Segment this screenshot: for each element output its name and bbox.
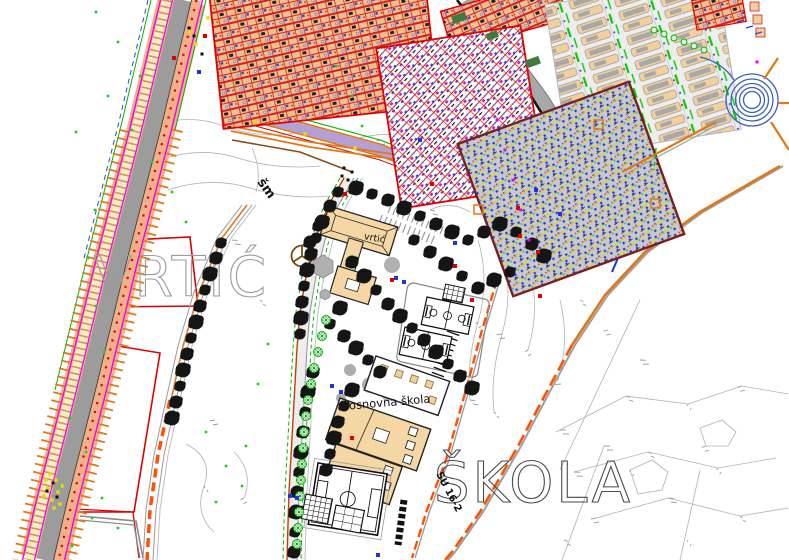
green-dot: [139, 75, 142, 78]
tree-canopy: [303, 242, 309, 248]
tree-canopy: [373, 372, 379, 378]
tree-canopy: [175, 370, 182, 377]
green-dot: [245, 445, 248, 448]
tree-canopy: [180, 354, 186, 360]
tick-mark: [494, 412, 496, 414]
tree-canopy: [177, 396, 183, 402]
magenta-dot: [756, 61, 759, 64]
tree-canopy: [362, 360, 367, 365]
tree-canopy: [181, 381, 186, 386]
tree-icon: [444, 225, 460, 240]
tick-mark: [473, 404, 478, 405]
green-dot: [361, 125, 364, 128]
conifer-icon: [318, 332, 327, 341]
yellow-dot: [44, 478, 47, 481]
tree-canopy: [184, 364, 191, 371]
tree-canopy: [353, 384, 360, 391]
tree-canopy: [301, 329, 306, 334]
tick-mark: [232, 240, 238, 241]
tick-mark: [479, 326, 481, 328]
green-dot: [241, 485, 244, 488]
tick-mark: [240, 498, 244, 500]
tree-canopy: [442, 364, 447, 369]
tick-mark: [207, 490, 208, 492]
tick-mark: [528, 354, 531, 356]
tree-canopy: [444, 232, 451, 239]
black-dot: [343, 167, 346, 170]
tick-mark: [717, 468, 718, 470]
conifer-center: [317, 351, 319, 353]
tree-canopy: [425, 334, 431, 340]
zone-label-school: ŠKOLA: [434, 451, 633, 516]
tree-icon: [429, 218, 443, 231]
tree-icon: [175, 363, 191, 378]
tree-canopy: [303, 296, 309, 302]
conifer-icon: [298, 460, 307, 469]
conifer-icon: [297, 476, 306, 485]
tick-mark: [243, 502, 247, 504]
red-dot: [470, 298, 474, 302]
contour-line: [556, 386, 788, 432]
red-dot: [430, 182, 434, 186]
green-dot: [95, 305, 98, 308]
conifer-icon: [295, 508, 304, 517]
tree-canopy: [396, 208, 403, 215]
tree-icon: [337, 330, 351, 343]
conifer-icon: [307, 380, 316, 389]
tree-canopy: [209, 258, 215, 264]
tree-canopy: [289, 532, 294, 537]
tree-canopy: [381, 366, 387, 372]
tree-canopy: [370, 290, 375, 295]
blue-dot: [418, 138, 422, 142]
tree-canopy: [326, 438, 333, 445]
blue-dot: [197, 70, 201, 74]
tree-canopy: [294, 334, 299, 339]
tree-canopy: [381, 200, 387, 206]
green-dot: [94, 209, 97, 212]
red-dot: [516, 206, 520, 210]
tree-canopy: [348, 348, 355, 355]
tree-canopy: [202, 274, 209, 281]
tree-canopy: [389, 298, 395, 304]
conifer-icon: [293, 540, 302, 549]
tick-mark: [687, 540, 688, 542]
tree-canopy: [357, 342, 364, 349]
conifer-icon: [300, 428, 309, 437]
conifer-center: [310, 383, 312, 385]
tree-canopy: [417, 340, 423, 346]
tree-canopy: [431, 246, 437, 252]
yellow-dot: [48, 472, 51, 475]
tree-icon: [392, 309, 408, 324]
contour-line: [234, 452, 247, 498]
tick-mark: [594, 522, 599, 523]
yellow-dot: [46, 486, 49, 489]
red-dot: [453, 264, 457, 268]
yellow-dot: [188, 30, 191, 33]
tree-canopy: [517, 227, 522, 232]
tree-canopy: [365, 270, 372, 277]
blue-dot: [534, 188, 538, 192]
green-dot: [117, 41, 120, 44]
tick-mark: [737, 386, 742, 387]
tree-canopy: [211, 268, 218, 275]
tree-canopy: [217, 252, 223, 258]
blue-dot: [330, 384, 334, 388]
tree-icon: [456, 271, 468, 282]
tree-icon: [174, 381, 186, 392]
conifer-center: [307, 399, 309, 401]
tree-canopy: [406, 328, 411, 333]
tick-mark: [705, 450, 709, 451]
conifer-center: [305, 415, 307, 417]
tree-canopy: [437, 218, 443, 224]
tree-canopy: [414, 216, 419, 221]
yellow-dot: [50, 498, 53, 501]
tree-canopy: [428, 352, 435, 359]
green-dot: [75, 131, 78, 134]
green-dot: [131, 129, 134, 132]
blue-dot: [376, 553, 380, 557]
black-dot: [52, 482, 55, 485]
black-dot: [347, 179, 350, 182]
tree-canopy: [339, 187, 344, 192]
tree-canopy: [429, 224, 435, 230]
tree-canopy: [464, 388, 471, 395]
blue-dot: [558, 212, 562, 216]
tree-canopy: [353, 256, 359, 262]
tree-canopy: [332, 192, 337, 197]
black-dot: [188, 27, 191, 30]
green-dot: [171, 191, 174, 194]
building-footprint: [750, 2, 759, 11]
tree-canopy: [504, 272, 509, 277]
tree-canopy: [293, 472, 298, 477]
blue-dot: [295, 496, 299, 500]
tree-canopy: [381, 304, 387, 310]
yellow-dot: [206, 16, 209, 19]
tree-canopy: [339, 416, 345, 422]
tree-icon: [471, 282, 485, 295]
contour-line: [700, 420, 736, 446]
magenta-dot: [504, 149, 507, 152]
tree-canopy: [206, 285, 211, 290]
tree-canopy: [337, 336, 343, 342]
basketball-court: [421, 297, 474, 334]
retaining-wall: [398, 500, 404, 545]
magenta-dot: [496, 119, 499, 122]
tree-canopy: [344, 390, 351, 397]
tree-canopy: [319, 221, 324, 226]
tree-canopy: [188, 322, 195, 329]
conifer-icon: [302, 412, 311, 421]
tick-mark: [743, 520, 746, 522]
tree-icon: [381, 298, 395, 311]
tick-mark: [564, 540, 568, 541]
tree-icon: [348, 341, 364, 356]
tree-canopy: [193, 306, 199, 312]
zone-label-kindergarten: VRTIĆ: [94, 245, 269, 309]
tree-canopy: [377, 285, 382, 290]
tick-mark: [740, 390, 745, 391]
green-dot: [257, 383, 260, 386]
tree-canopy: [438, 264, 445, 271]
green-dot: [87, 257, 90, 260]
tick-mark: [720, 472, 721, 474]
site-plan-drawing: VRTIĆ ŠKOLA vrtić osnovna škola šm SU 16…: [0, 0, 789, 560]
tick-mark: [583, 304, 586, 306]
site-plan-canvas: VRTIĆ ŠKOLA vrtić osnovna škola šm SU 16…: [0, 0, 789, 560]
green-dot: [267, 343, 270, 346]
yellow-dot: [58, 502, 61, 505]
green-dot: [91, 517, 94, 520]
red-dot: [343, 192, 347, 196]
tree-canopy: [312, 226, 317, 231]
conifer-center: [301, 463, 303, 465]
tree-canopy: [461, 370, 467, 376]
conifer-center: [302, 447, 304, 449]
tree-canopy: [288, 512, 295, 519]
tree-canopy: [173, 412, 180, 419]
blue-dot: [394, 276, 398, 280]
conifer-center: [321, 335, 323, 337]
tick-mark: [496, 334, 502, 335]
conifer-icon: [294, 524, 303, 533]
tree-canopy: [492, 224, 499, 231]
tree-canopy: [453, 376, 459, 382]
green-dot: [101, 497, 104, 500]
tree-canopy: [306, 372, 312, 378]
tree-canopy: [408, 240, 413, 245]
tree-canopy: [304, 254, 310, 260]
blue-dot: [339, 390, 343, 394]
tree-icon: [423, 246, 437, 259]
road-designation-label: šm: [254, 176, 279, 202]
tick-mark: [606, 334, 611, 335]
contour-line: [430, 205, 470, 212]
tree-canopy: [293, 452, 300, 459]
tree-canopy: [317, 233, 322, 238]
tree-icon: [366, 189, 378, 200]
tree-canopy: [501, 218, 508, 225]
conifer-icon: [299, 444, 308, 453]
tree-canopy: [447, 258, 454, 265]
tree-canopy: [437, 346, 444, 353]
tree-canopy: [287, 552, 293, 558]
tick-mark: [702, 446, 706, 447]
conifer-icon: [322, 316, 331, 325]
tree-canopy: [415, 235, 420, 240]
black-dot: [351, 171, 354, 174]
tree-canopy: [164, 418, 171, 425]
tree-canopy: [312, 248, 318, 254]
tree-icon: [438, 257, 454, 272]
red-dot: [390, 278, 394, 282]
tree-canopy: [201, 300, 207, 306]
tree-canopy: [331, 319, 336, 324]
tick-mark: [603, 330, 608, 331]
tree-canopy: [197, 316, 204, 323]
tree-canopy: [331, 449, 336, 454]
tree-canopy: [495, 274, 502, 281]
conifer-center: [297, 527, 299, 529]
tick-mark: [433, 214, 438, 215]
tree-icon: [362, 355, 374, 366]
green-dot: [205, 431, 208, 434]
tree-canopy: [392, 316, 399, 323]
green-dot: [103, 351, 106, 354]
tick-mark: [629, 400, 633, 401]
conifer-icon: [314, 348, 323, 357]
tree-canopy: [295, 302, 301, 308]
tree-canopy: [222, 238, 227, 243]
tree-icon: [381, 194, 395, 207]
tick-mark: [651, 456, 654, 458]
tree-canopy: [486, 280, 493, 287]
red-dot: [172, 56, 176, 60]
tick-mark: [470, 400, 475, 401]
tree-icon: [464, 381, 480, 396]
tree-canopy: [341, 302, 348, 309]
tree-canopy: [413, 323, 418, 328]
tree-canopy: [421, 211, 426, 216]
bleachers: [301, 494, 332, 524]
tree-canopy: [545, 250, 552, 257]
tree-canopy: [323, 206, 329, 212]
tick-mark: [555, 384, 561, 385]
tree-canopy: [525, 244, 531, 250]
green-dot: [69, 417, 72, 420]
red-dot: [350, 436, 354, 440]
tree-canopy: [389, 194, 395, 200]
conifer-icon: [310, 364, 319, 373]
tick-mark: [690, 544, 691, 546]
yellow-dot: [54, 478, 57, 481]
tree-canopy: [533, 238, 539, 244]
tree-canopy: [308, 264, 315, 271]
black-dot: [355, 185, 358, 188]
tick-mark: [210, 420, 215, 421]
canopy-circle: [384, 257, 400, 273]
tree-icon: [408, 235, 420, 246]
tree-canopy: [323, 216, 330, 223]
tick-mark: [740, 516, 743, 518]
blue-dot: [402, 280, 406, 284]
tick-mark: [497, 416, 499, 418]
magenta-dot: [528, 239, 531, 242]
yellow-dot: [60, 484, 63, 487]
yellow-dot: [56, 490, 59, 493]
tree-icon: [486, 273, 502, 288]
tree-canopy: [456, 276, 461, 281]
yellow-dot: [42, 494, 45, 497]
tree-canopy: [298, 286, 303, 291]
green-dot: [215, 501, 218, 504]
black-dot: [56, 496, 59, 499]
tree-icon: [164, 411, 180, 426]
tree-canopy: [462, 240, 467, 245]
tree-icon: [344, 383, 360, 398]
tree-canopy: [348, 188, 355, 195]
blue-dot: [288, 494, 292, 498]
tree-canopy: [401, 310, 408, 317]
tree-canopy: [188, 348, 194, 354]
tree-canopy: [463, 271, 468, 276]
tree-icon: [332, 301, 348, 316]
green-dot: [351, 95, 354, 98]
tree-canopy: [332, 308, 339, 315]
green-dot: [335, 65, 338, 68]
contour-line: [680, 470, 700, 560]
tree-icon: [453, 370, 467, 383]
yellow-dot: [52, 506, 55, 509]
contour-line: [168, 182, 330, 197]
tree-canopy: [477, 232, 483, 238]
tick-mark: [204, 486, 205, 488]
tick-mark: [430, 210, 435, 211]
tree-canopy: [369, 355, 374, 360]
tree-canopy: [356, 276, 363, 283]
tree-icon: [188, 315, 204, 330]
building-footprint: [753, 15, 762, 24]
tree-canopy: [345, 330, 351, 336]
conifer-icon: [304, 396, 313, 405]
tree-canopy: [302, 312, 309, 319]
yellow-dot: [194, 42, 197, 45]
tree-canopy: [319, 470, 325, 476]
tree-canopy: [510, 232, 515, 237]
conifer-center: [313, 367, 315, 369]
tree-canopy: [331, 200, 337, 206]
contour-line: [186, 444, 214, 532]
black-dot: [193, 35, 196, 38]
tree-canopy: [357, 182, 364, 189]
conifer-center: [300, 479, 302, 481]
tree-canopy: [169, 402, 175, 408]
tick-mark: [591, 518, 596, 519]
green-dot: [151, 161, 154, 164]
tree-canopy: [324, 454, 329, 459]
red-dot: [538, 294, 542, 298]
red-dot: [203, 34, 207, 38]
green-dot: [71, 545, 74, 548]
yellow-dot: [253, 120, 256, 123]
tick-mark: [580, 300, 583, 302]
retaining-wall-layer: [398, 500, 404, 545]
tree-icon: [477, 226, 491, 239]
tree-canopy: [335, 432, 342, 439]
green-dot: [117, 527, 120, 530]
blue-dot: [453, 241, 457, 245]
tree-canopy: [469, 235, 474, 240]
tick-mark: [525, 350, 528, 352]
tree-canopy: [174, 386, 179, 391]
tree-icon: [462, 235, 474, 246]
black-dot: [46, 490, 49, 493]
tree-canopy: [199, 290, 204, 295]
tree-canopy: [185, 338, 190, 343]
conifer-center: [296, 543, 298, 545]
tick-mark: [668, 498, 674, 499]
tree-canopy: [338, 406, 343, 411]
magenta-dot: [520, 209, 523, 212]
conifer-center: [325, 319, 327, 321]
tree-canopy: [192, 333, 197, 338]
tree-canopy: [311, 236, 317, 242]
conifer-center: [299, 495, 301, 497]
tree-canopy: [453, 226, 460, 233]
